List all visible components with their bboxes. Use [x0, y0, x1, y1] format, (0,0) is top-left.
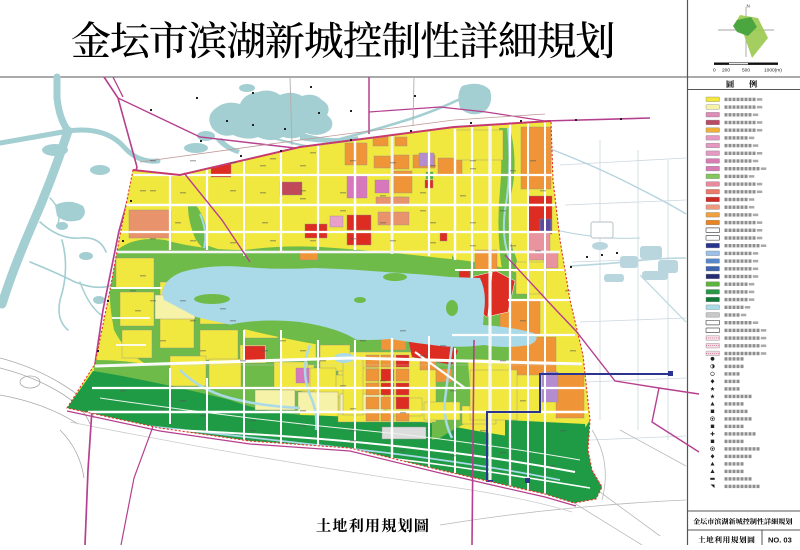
svg-text:NO. 03: NO. 03: [768, 536, 792, 545]
svg-text:200: 200: [722, 68, 730, 74]
svg-text:1000(m): 1000(m): [764, 68, 782, 74]
svg-text:N: N: [747, 4, 750, 9]
svg-text:0: 0: [713, 68, 716, 74]
svg-text:500: 500: [742, 68, 750, 74]
